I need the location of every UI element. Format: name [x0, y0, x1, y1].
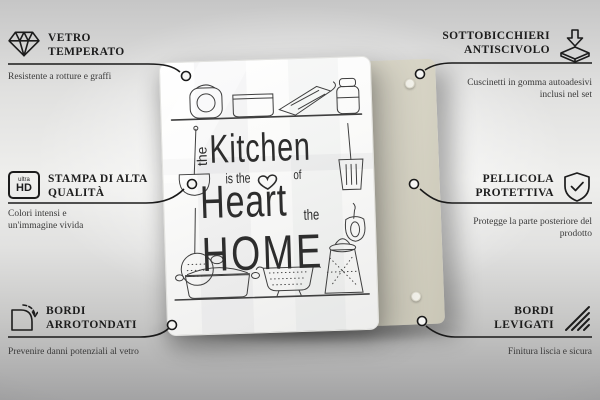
- callout-title: BORDI ARROTONDATI: [46, 303, 137, 332]
- callout-title: SOTTOBICCHIERI ANTISCIVOLO: [442, 28, 550, 57]
- callout-anti-slip-coasters: SOTTOBICCHIERI ANTISCIVOLO Cuscinetti in…: [392, 28, 592, 101]
- print-word-the-2: the: [303, 206, 319, 223]
- callout-description: Cuscinetti in gomma autoadesivi inclusi …: [442, 78, 592, 101]
- callout-print-quality: ultra HD STAMPA DI ALTA QUALITÀ Colori i…: [8, 171, 183, 232]
- print-word-heart: Heart: [199, 173, 288, 228]
- callout-description: Protegge la parte posteriore del prodott…: [467, 217, 592, 240]
- callout-rounded-edges: BORDI ARROTONDATI Prevenire danni potenz…: [8, 303, 183, 359]
- print-word-the-1: the: [193, 146, 210, 166]
- callout-title: BORDI LEVIGATI: [494, 303, 554, 332]
- diamond-icon: [8, 30, 40, 63]
- callout-title: PELLICOLA PROTETTIVA: [475, 171, 554, 200]
- rounded-corner-icon: [8, 303, 38, 338]
- callout-description: Resistente a rotture e graffi: [8, 72, 168, 84]
- glass-board: the Kitchen is the of Heart the HOME: [159, 56, 380, 337]
- ultra-hd-icon: ultra HD: [8, 171, 40, 199]
- callout-description: Colori intensi e un'immagine vivida: [8, 209, 108, 232]
- kitchen-print-artwork: the Kitchen is the of Heart the HOME: [160, 57, 378, 335]
- print-word-of: of: [293, 169, 302, 183]
- callout-title: STAMPA DI ALTA QUALITÀ: [48, 171, 148, 200]
- rubber-pad-icon: [411, 291, 421, 301]
- print-word-kitchen: Kitchen: [209, 124, 311, 172]
- callout-tempered-glass: VETRO TEMPERATO Resistente a rotture e g…: [8, 30, 183, 84]
- product-infographic: the Kitchen is the of Heart the HOME: [0, 0, 600, 400]
- callout-polished-edges: BORDI LEVIGATI Finitura liscia e sicura: [417, 303, 592, 359]
- shield-check-icon: [562, 171, 592, 208]
- callout-protective-film: PELLICOLA PROTETTIVA Protegge la parte p…: [417, 171, 592, 240]
- callout-title: VETRO TEMPERATO: [48, 30, 125, 59]
- print-word-home: HOME: [201, 225, 324, 282]
- polished-edge-icon: [562, 303, 592, 338]
- anti-slip-pad-icon: [558, 28, 592, 69]
- callout-description: Finitura liscia e sicura: [452, 347, 592, 359]
- callout-description: Prevenire danni potenziali al vetro: [8, 347, 143, 359]
